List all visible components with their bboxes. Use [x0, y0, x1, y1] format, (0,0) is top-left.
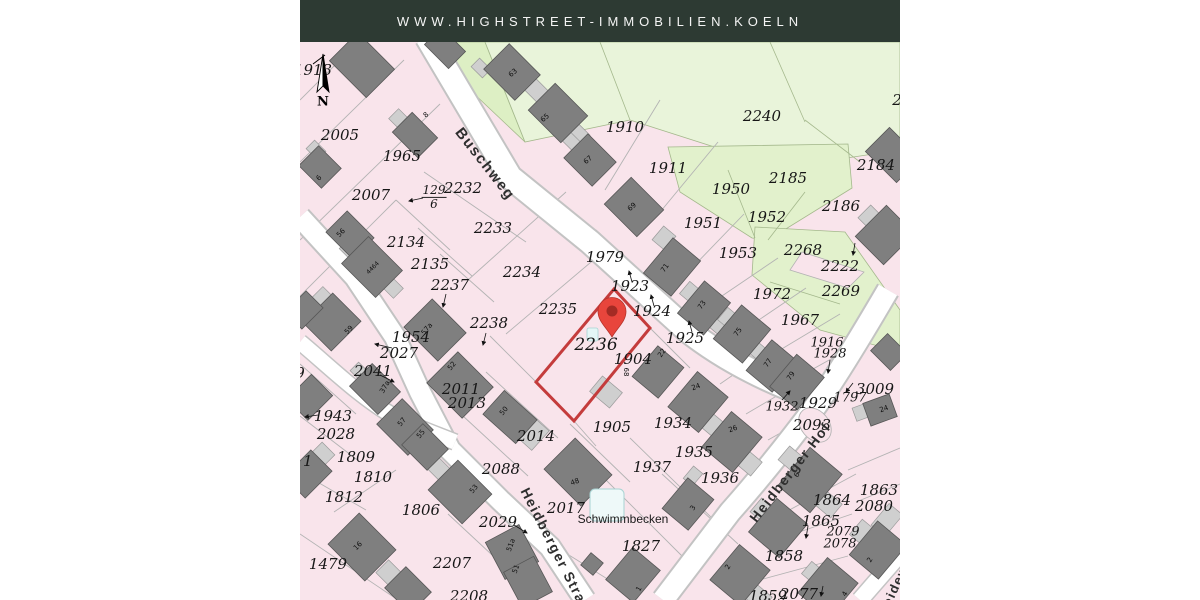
cadastral-map: 1913200519652007223222332134213522372234…: [300, 42, 900, 600]
pool-schwimmbecken: [590, 489, 624, 521]
page: WWW.HIGHSTREET-IMMOBILIEN.KOELN: [0, 0, 1200, 600]
pool-small: [587, 328, 598, 341]
website-url: WWW.HIGHSTREET-IMMOBILIEN.KOELN: [397, 14, 803, 29]
parcel-fraction-label: 129 6: [422, 184, 447, 210]
fraction-denominator: 6: [422, 198, 447, 211]
compass-north-label: N: [317, 95, 329, 110]
map-graphics: [300, 42, 900, 600]
header-bar: WWW.HIGHSTREET-IMMOBILIEN.KOELN: [300, 0, 900, 42]
fraction-numerator: 129: [422, 184, 447, 198]
content-area: WWW.HIGHSTREET-IMMOBILIEN.KOELN: [300, 0, 900, 600]
